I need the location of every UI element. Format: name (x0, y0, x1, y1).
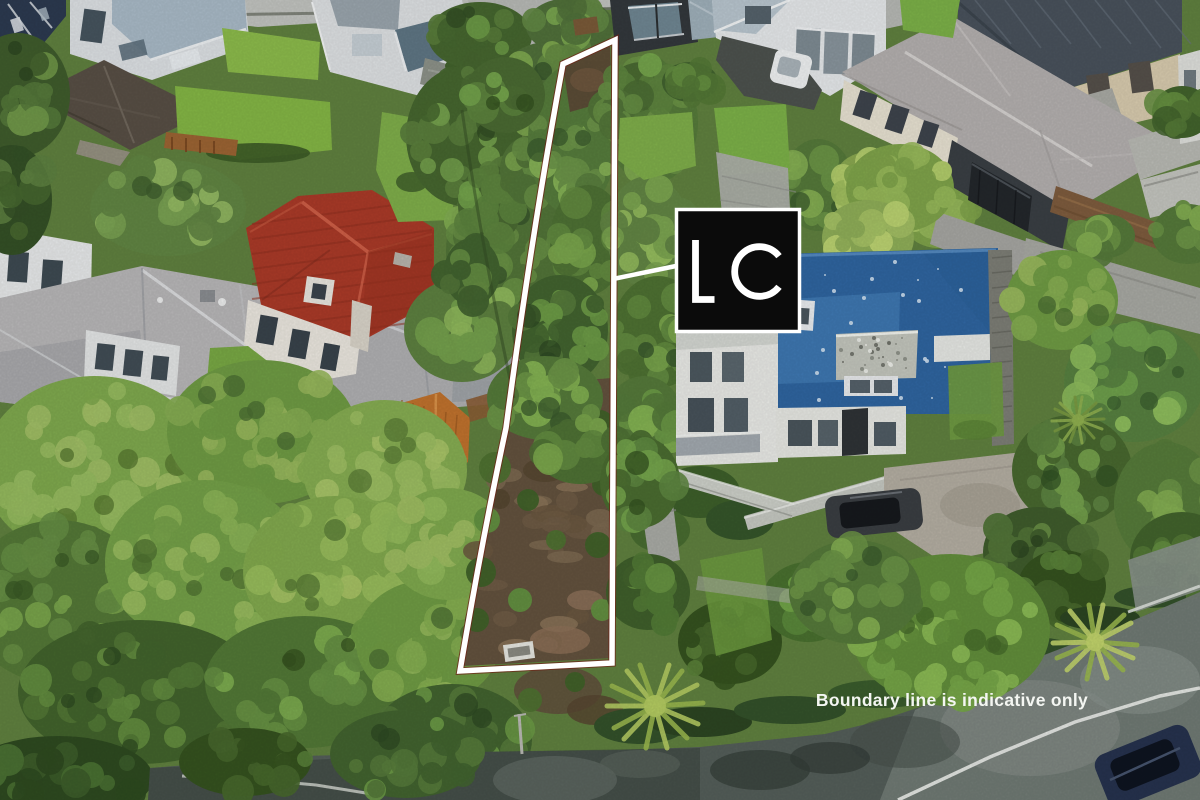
svg-text:Boundary line is indicative on: Boundary line is indicative only (816, 690, 1088, 710)
